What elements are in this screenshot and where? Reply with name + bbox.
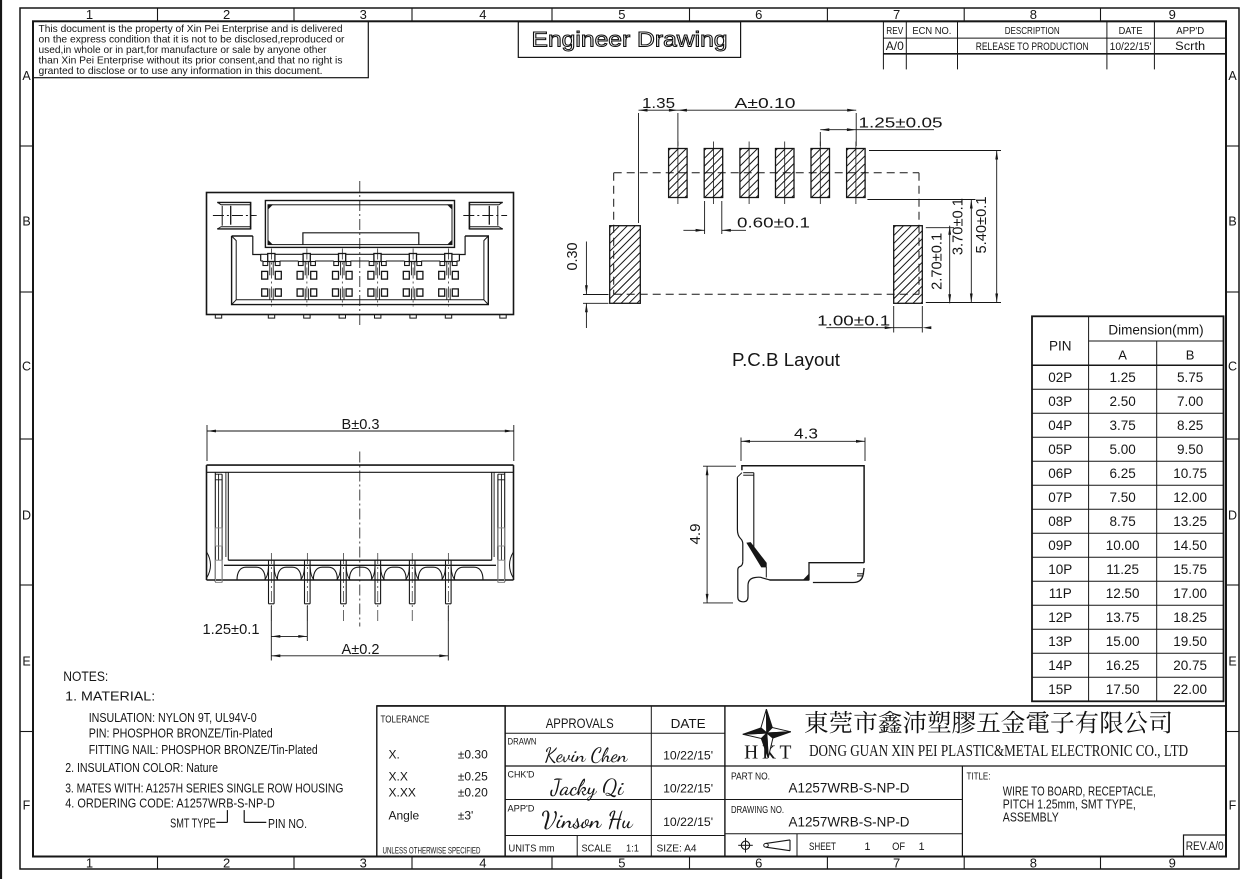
svg-text:12P: 12P <box>1048 610 1072 625</box>
svg-text:Dimension(mm): Dimension(mm) <box>1108 323 1203 338</box>
svg-text:DATE: DATE <box>671 717 706 731</box>
svg-text:TITLE:: TITLE: <box>967 771 991 783</box>
svg-text:10P: 10P <box>1048 562 1072 577</box>
svg-text:7.00: 7.00 <box>1177 394 1203 409</box>
svg-text:5: 5 <box>618 855 625 870</box>
svg-text:07P: 07P <box>1048 490 1072 505</box>
svg-text:SCALE: SCALE <box>582 843 612 855</box>
svg-text:DESCRIPTION: DESCRIPTION <box>1005 26 1060 37</box>
svg-text:18.25: 18.25 <box>1173 610 1207 625</box>
svg-text:4.3: 4.3 <box>794 425 818 442</box>
svg-text:16.25: 16.25 <box>1106 658 1140 673</box>
svg-text:7: 7 <box>893 855 900 870</box>
svg-text:10/22/15': 10/22/15' <box>663 782 713 796</box>
svg-text:PIN NO.: PIN NO. <box>268 817 307 831</box>
svg-text:REV.A/0: REV.A/0 <box>1186 841 1224 853</box>
svg-text:17.00: 17.00 <box>1173 586 1207 601</box>
svg-text:D: D <box>1228 509 1237 523</box>
svg-text:2.50: 2.50 <box>1109 394 1135 409</box>
svg-text:2: 2 <box>223 855 230 870</box>
svg-text:5.75: 5.75 <box>1177 370 1203 385</box>
svg-text:E: E <box>1228 655 1236 669</box>
svg-text:±0.20: ±0.20 <box>458 785 488 799</box>
svg-text:A: A <box>1228 69 1237 83</box>
svg-text:A: A <box>22 69 31 83</box>
svg-text:than Xin Pei Enterprise withou: than Xin Pei Enterprise without its prio… <box>39 56 343 67</box>
svg-text:T: T <box>780 742 792 763</box>
svg-text:5: 5 <box>618 7 625 22</box>
svg-text:FITTING NAIL: PHOSPHOR BRON: FITTING NAIL: PHOSPHOR BRONZE/Tin-Plated <box>89 743 318 757</box>
svg-text:ASSEMBLY: ASSEMBLY <box>1003 811 1060 825</box>
svg-text:X.X: X.X <box>389 769 408 783</box>
svg-text:APP'D: APP'D <box>508 804 535 815</box>
svg-text:1.25±0.1: 1.25±0.1 <box>203 621 260 638</box>
svg-text:A±0.10: A±0.10 <box>735 95 796 112</box>
svg-text:SMT TYPE: SMT TYPE <box>170 817 216 831</box>
svg-text:2. INSULATION COLOR: Nature: 2. INSULATION COLOR: Nature <box>65 761 218 775</box>
svg-text:15.75: 15.75 <box>1173 562 1207 577</box>
svg-text:09P: 09P <box>1048 538 1072 553</box>
svg-text:0.30: 0.30 <box>564 243 581 271</box>
svg-text:1: 1 <box>919 841 925 853</box>
svg-text:13P: 13P <box>1048 634 1072 649</box>
svg-text:1: 1 <box>864 841 870 853</box>
svg-text:APP'D: APP'D <box>1176 26 1204 37</box>
svg-text:3.75: 3.75 <box>1109 418 1135 433</box>
svg-text:A1257WRB-S-NP-D: A1257WRB-S-NP-D <box>789 815 910 830</box>
svg-text:5.00: 5.00 <box>1109 442 1135 457</box>
svg-text:3.70±0.1: 3.70±0.1 <box>949 198 966 255</box>
svg-text:SHEET: SHEET <box>809 841 836 853</box>
svg-text:4.9: 4.9 <box>687 524 704 545</box>
svg-text:7: 7 <box>893 7 900 22</box>
svg-text:Engineer Drawing: Engineer Drawing <box>532 28 728 52</box>
svg-text:E: E <box>22 655 30 669</box>
svg-text:10/22/15': 10/22/15' <box>1110 41 1152 53</box>
svg-text:3: 3 <box>360 855 367 870</box>
svg-text:PIN: PHOSPHOR BRONZE/Tin-Pla: PIN: PHOSPHOR BRONZE/Tin-Plated <box>89 727 273 741</box>
svg-text:X.: X. <box>389 747 400 761</box>
svg-text:15.00: 15.00 <box>1106 634 1140 649</box>
svg-text:This document is the property: This document is the property of Xin Pei… <box>39 24 343 35</box>
svg-text:A/0: A/0 <box>886 39 904 53</box>
svg-text:used,in whole or in part,for m: used,in whole or in part,for manufacture… <box>39 45 328 56</box>
svg-text:08P: 08P <box>1048 514 1072 529</box>
svg-text:19.50: 19.50 <box>1173 634 1207 649</box>
svg-text:0.60±0.1: 0.60±0.1 <box>737 214 810 231</box>
svg-text:02P: 02P <box>1048 370 1072 385</box>
svg-text:on the express condition that: on the express condition that it is not … <box>39 35 346 46</box>
svg-text:17.50: 17.50 <box>1106 682 1140 697</box>
svg-text:12.50: 12.50 <box>1106 586 1140 601</box>
svg-text:A±0.2: A±0.2 <box>342 641 380 658</box>
svg-text:8: 8 <box>1030 855 1037 870</box>
svg-text:22.00: 22.00 <box>1173 682 1207 697</box>
svg-text:10/22/15': 10/22/15' <box>663 815 713 829</box>
svg-text:CHK'D: CHK'D <box>508 770 535 781</box>
svg-text:F: F <box>23 799 31 813</box>
svg-text:8.75: 8.75 <box>1109 514 1135 529</box>
svg-text:ECN NO.: ECN NO. <box>912 26 951 37</box>
svg-text:B±0.3: B±0.3 <box>342 416 380 433</box>
svg-text:6: 6 <box>755 855 762 870</box>
svg-text:14P: 14P <box>1048 658 1072 673</box>
svg-text:RELEASE TO PRODUCTION: RELEASE TO PRODUCTION <box>976 41 1089 53</box>
svg-text:9.50: 9.50 <box>1177 442 1203 457</box>
svg-text:TOLERANCE: TOLERANCE <box>381 714 430 726</box>
svg-text:A1257WRB-S-NP-D: A1257WRB-S-NP-D <box>789 781 910 796</box>
svg-text:F: F <box>1229 799 1237 813</box>
svg-text:4: 4 <box>479 7 486 22</box>
svg-text:12.00: 12.00 <box>1173 490 1207 505</box>
svg-text:DRAWN: DRAWN <box>508 737 537 748</box>
svg-text:3: 3 <box>360 7 367 22</box>
svg-text:B: B <box>22 215 30 229</box>
svg-text:13.75: 13.75 <box>1106 610 1140 625</box>
svg-text:X.XX: X.XX <box>389 785 416 799</box>
svg-text:1: 1 <box>86 7 93 22</box>
svg-text:WIRE TO BOARD, RECEPTACLE,: WIRE TO BOARD, RECEPTACLE, <box>1003 785 1156 799</box>
svg-text:PITCH 1.25mm, SMT TYPE,: PITCH 1.25mm, SMT TYPE, <box>1003 798 1136 812</box>
svg-text:9: 9 <box>1169 7 1176 22</box>
svg-text:B: B <box>1228 215 1236 229</box>
svg-text:1:1: 1:1 <box>626 843 639 855</box>
svg-text:13.25: 13.25 <box>1173 514 1207 529</box>
svg-text:1.35: 1.35 <box>642 95 675 112</box>
svg-text:±0.30: ±0.30 <box>458 747 488 761</box>
svg-text:UNITS mm: UNITS mm <box>509 843 555 855</box>
svg-text:B: B <box>1186 348 1195 363</box>
svg-text:P.C.B Layout: P.C.B Layout <box>732 350 840 370</box>
svg-text:8.25: 8.25 <box>1177 418 1203 433</box>
svg-text:Angle: Angle <box>389 808 420 822</box>
svg-text:REV: REV <box>886 26 903 37</box>
svg-text:7.50: 7.50 <box>1109 490 1135 505</box>
svg-text:4: 4 <box>479 855 486 870</box>
svg-text:DONG GUAN XIN PEI PLASTIC&META: DONG GUAN XIN PEI PLASTIC&METAL ELECTRON… <box>809 741 1188 760</box>
svg-text:±3': ±3' <box>458 808 474 822</box>
svg-text:11.25: 11.25 <box>1106 562 1139 577</box>
svg-text:PIN: PIN <box>1049 338 1072 353</box>
svg-text:APPROVALS: APPROVALS <box>546 716 614 731</box>
svg-text:PART NO.: PART NO. <box>731 771 770 783</box>
svg-text:2: 2 <box>223 7 230 22</box>
svg-text:C: C <box>22 360 31 374</box>
svg-text:DATE: DATE <box>1119 26 1143 37</box>
svg-text:A: A <box>1118 348 1127 363</box>
svg-text:Scrth: Scrth <box>1175 41 1205 53</box>
svg-text:±0.25: ±0.25 <box>458 769 488 783</box>
svg-text:NOTES:: NOTES: <box>63 669 108 684</box>
svg-text:H: H <box>744 742 758 763</box>
svg-text:03P: 03P <box>1048 394 1072 409</box>
svg-text:3. MATES WITH: A1257H SERI: 3. MATES WITH: A1257H SERIES SINGLE ROW … <box>65 781 343 795</box>
svg-text:1.25: 1.25 <box>1109 370 1135 385</box>
svg-text:04P: 04P <box>1048 418 1072 433</box>
svg-text:10/22/15': 10/22/15' <box>663 749 713 763</box>
svg-text:UNLESS OTHERWISE SPECIFIED: UNLESS OTHERWISE SPECIFIED <box>383 846 481 856</box>
svg-text:1: 1 <box>86 855 93 870</box>
svg-text:15P: 15P <box>1048 682 1072 697</box>
svg-text:11P: 11P <box>1049 586 1072 601</box>
svg-text:8: 8 <box>1030 7 1037 22</box>
svg-text:OF: OF <box>892 841 905 853</box>
svg-text:INSULATION: NYLON 9T, UL94V: INSULATION: NYLON 9T, UL94V-0 <box>89 711 257 725</box>
svg-text:20.75: 20.75 <box>1173 658 1207 673</box>
svg-text:9: 9 <box>1169 855 1176 870</box>
svg-text:2.70±0.1: 2.70±0.1 <box>929 233 946 290</box>
svg-text:D: D <box>22 509 31 523</box>
svg-text:1.25±0.05: 1.25±0.05 <box>859 114 943 131</box>
svg-text:1. MATERIAL:: 1. MATERIAL: <box>65 690 155 704</box>
svg-text:DRAWING NO.: DRAWING NO. <box>731 804 784 816</box>
svg-text:05P: 05P <box>1048 442 1072 457</box>
svg-text:5.40±0.1: 5.40±0.1 <box>973 197 990 254</box>
svg-text:1.00±0.1: 1.00±0.1 <box>817 313 890 330</box>
svg-text:C: C <box>1228 360 1237 374</box>
svg-text:14.50: 14.50 <box>1173 538 1207 553</box>
svg-text:10.00: 10.00 <box>1106 538 1140 553</box>
svg-text:4. ORDERING CODE: A1257WRB-: 4. ORDERING CODE: A1257WRB-S-NP-D <box>65 797 275 811</box>
svg-text:10.75: 10.75 <box>1173 466 1207 481</box>
svg-text:SIZE: A4: SIZE: A4 <box>657 843 697 855</box>
svg-text:6: 6 <box>755 7 762 22</box>
svg-text:6.25: 6.25 <box>1109 466 1135 481</box>
svg-text:granted to disclose or to use: granted to disclose or to use any inform… <box>39 66 323 77</box>
svg-text:06P: 06P <box>1048 466 1072 481</box>
